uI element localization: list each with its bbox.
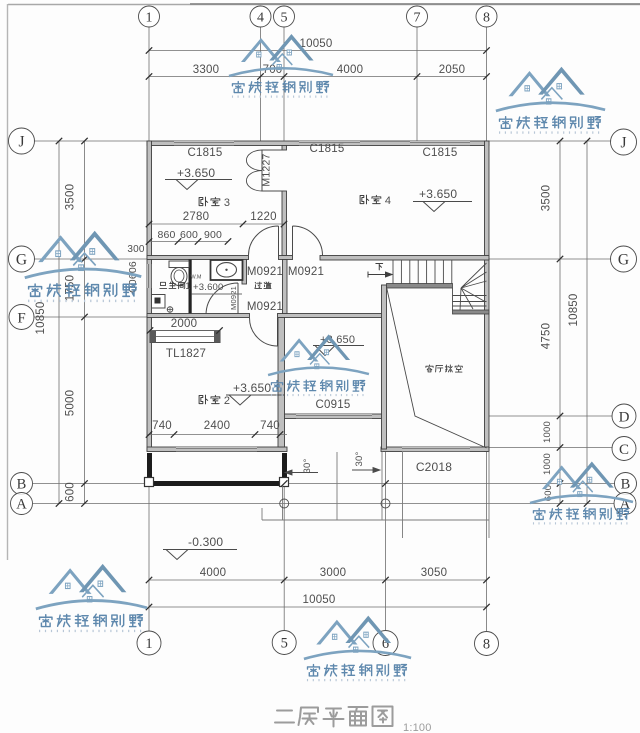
svg-text:10050: 10050	[300, 38, 333, 50]
svg-text:M0921: M0921	[229, 286, 238, 310]
svg-text:740: 740	[152, 420, 172, 432]
svg-text:1220: 1220	[250, 211, 276, 223]
svg-text:600: 600	[65, 482, 77, 502]
svg-text:3500: 3500	[541, 185, 553, 211]
svg-text:C: C	[619, 442, 629, 458]
svg-text:3500: 3500	[65, 184, 77, 210]
svg-text:3300: 3300	[193, 64, 219, 76]
svg-text:30°: 30°	[302, 459, 313, 474]
svg-text:4750: 4750	[541, 323, 553, 349]
svg-text:8: 8	[483, 10, 490, 25]
svg-text:+3.650: +3.650	[419, 187, 457, 201]
svg-text:2050: 2050	[439, 64, 465, 76]
svg-text:1000: 1000	[542, 421, 553, 443]
svg-text:7: 7	[414, 10, 421, 25]
svg-text:3000: 3000	[320, 567, 346, 579]
svg-text:2: 2	[224, 395, 230, 407]
svg-text:4: 4	[257, 10, 264, 25]
svg-text:+3.600: +3.600	[193, 282, 224, 293]
svg-text:8: 8	[483, 637, 490, 653]
svg-text:+3.650: +3.650	[177, 166, 215, 180]
svg-text:4000: 4000	[200, 567, 226, 579]
svg-text:G: G	[618, 251, 629, 268]
svg-text:M0921: M0921	[247, 266, 283, 278]
svg-text:300: 300	[127, 244, 145, 255]
svg-text:5: 5	[281, 636, 288, 652]
svg-text:1000: 1000	[542, 453, 553, 475]
svg-text:1:100: 1:100	[403, 722, 432, 733]
svg-text:W.M: W.M	[191, 275, 202, 281]
svg-text:5000: 5000	[65, 390, 77, 416]
svg-text:B: B	[621, 477, 631, 493]
svg-text:1: 1	[185, 281, 190, 291]
svg-text:C1815: C1815	[423, 147, 458, 159]
svg-text:M0921: M0921	[288, 266, 324, 278]
svg-text:600: 600	[180, 229, 198, 241]
svg-text:5: 5	[281, 10, 288, 25]
svg-text:2000: 2000	[171, 318, 197, 330]
svg-text:30°: 30°	[354, 452, 365, 467]
svg-text:900: 900	[204, 229, 222, 241]
svg-text:3050: 3050	[421, 567, 447, 579]
svg-text:3: 3	[224, 197, 230, 209]
svg-text:10850: 10850	[568, 294, 580, 327]
svg-text:J: J	[18, 133, 24, 150]
svg-text:TL1827: TL1827	[166, 348, 206, 360]
svg-text:-0.300: -0.300	[188, 535, 223, 549]
svg-text:4000: 4000	[337, 64, 363, 76]
svg-text:10050: 10050	[303, 594, 336, 606]
svg-text:J: J	[620, 134, 626, 151]
svg-text:860: 860	[157, 229, 175, 241]
svg-text:+3.650: +3.650	[233, 381, 271, 395]
svg-text:C1815: C1815	[188, 147, 223, 159]
svg-text:C2018: C2018	[416, 460, 452, 474]
svg-text:1: 1	[146, 10, 153, 25]
svg-text:M0921: M0921	[247, 301, 283, 313]
svg-text:740: 740	[260, 420, 280, 432]
svg-text:C1815: C1815	[310, 143, 345, 155]
svg-text:A: A	[16, 497, 27, 513]
svg-text:F: F	[17, 310, 25, 326]
svg-text:2780: 2780	[183, 211, 209, 223]
svg-text:G: G	[16, 251, 27, 268]
svg-text:4: 4	[385, 195, 391, 207]
svg-text:M1227: M1227	[261, 153, 273, 186]
svg-text:2400: 2400	[204, 420, 230, 432]
svg-text:B: B	[17, 477, 27, 493]
svg-text:10850: 10850	[35, 302, 47, 335]
svg-text:C0915: C0915	[316, 399, 351, 411]
svg-text:1: 1	[145, 636, 152, 652]
svg-text:D: D	[619, 409, 630, 425]
